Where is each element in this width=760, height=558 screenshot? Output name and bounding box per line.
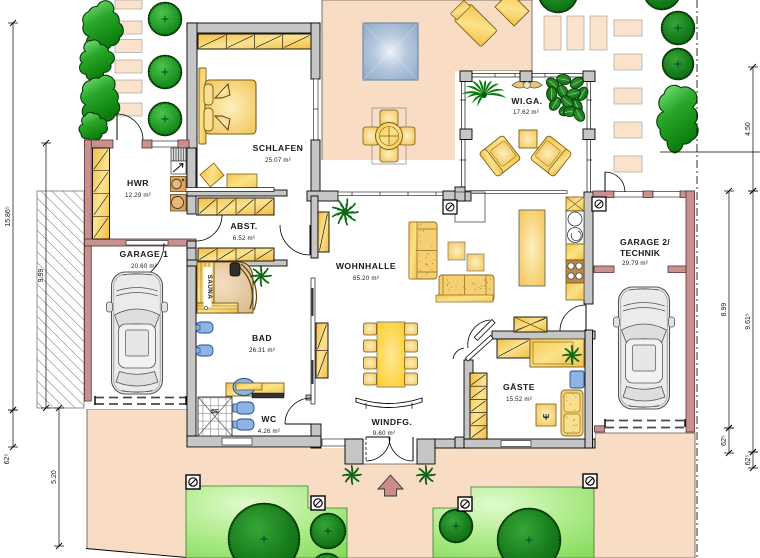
svg-text:SCHLAFEN: SCHLAFEN bbox=[253, 143, 304, 153]
svg-text:BE: BE bbox=[211, 409, 219, 415]
svg-text:ABST.: ABST. bbox=[230, 221, 257, 231]
svg-text:6.52 m²: 6.52 m² bbox=[233, 235, 255, 242]
svg-text:65.20 m²: 65.20 m² bbox=[353, 275, 379, 282]
svg-text:8.99: 8.99 bbox=[721, 303, 728, 317]
svg-text:9.61⁵: 9.61⁵ bbox=[745, 313, 752, 330]
svg-text:15.86⁵: 15.86⁵ bbox=[5, 206, 12, 227]
svg-text:15.52 m²: 15.52 m² bbox=[506, 396, 532, 403]
svg-text:WC: WC bbox=[261, 414, 276, 424]
svg-text:HWR: HWR bbox=[127, 178, 149, 188]
svg-text:TECHNIK: TECHNIK bbox=[620, 248, 661, 258]
svg-text:26.31 m²: 26.31 m² bbox=[249, 347, 275, 354]
svg-text:20.60 m²: 20.60 m² bbox=[131, 263, 157, 270]
svg-text:62⁵: 62⁵ bbox=[721, 435, 728, 446]
svg-text:25.07 m²: 25.07 m² bbox=[265, 157, 291, 164]
svg-text:62⁵: 62⁵ bbox=[745, 455, 752, 466]
svg-text:GARAGE 1: GARAGE 1 bbox=[120, 249, 169, 259]
svg-text:BAD: BAD bbox=[252, 333, 272, 343]
svg-text:GARAGE 2/: GARAGE 2/ bbox=[620, 237, 670, 247]
svg-text:17.62 m²: 17.62 m² bbox=[513, 109, 539, 116]
svg-text:WI.GA.: WI.GA. bbox=[511, 96, 542, 106]
svg-text:SAUNA: SAUNA bbox=[206, 275, 213, 300]
svg-text:62⁵: 62⁵ bbox=[4, 454, 11, 465]
svg-text:9.99: 9.99 bbox=[38, 269, 45, 283]
svg-text:5.20: 5.20 bbox=[51, 470, 58, 484]
svg-text:GÄSTE: GÄSTE bbox=[503, 382, 535, 392]
svg-text:4.26 m²: 4.26 m² bbox=[258, 428, 280, 435]
svg-text:9.60 m²: 9.60 m² bbox=[373, 430, 395, 437]
svg-text:WOHNHALLE: WOHNHALLE bbox=[336, 261, 396, 271]
svg-text:29.79 m²: 29.79 m² bbox=[622, 260, 648, 267]
svg-text:WINDFG.: WINDFG. bbox=[372, 417, 413, 427]
svg-text:12.29 m²: 12.29 m² bbox=[125, 192, 151, 199]
svg-text:4.50: 4.50 bbox=[745, 122, 752, 136]
